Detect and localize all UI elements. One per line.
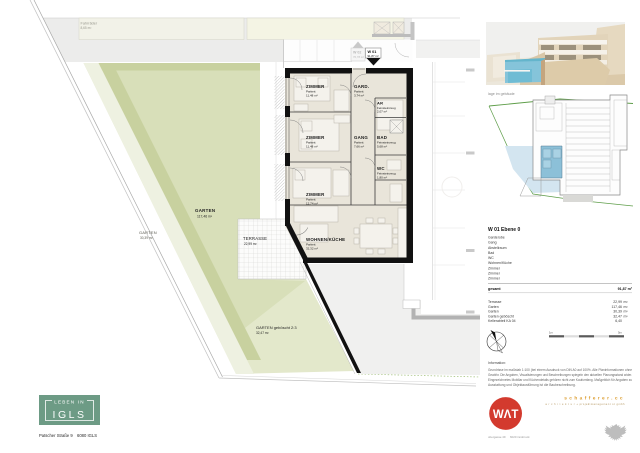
svg-text:Patscher Straße 9: Patscher Straße 9 xyxy=(39,433,73,438)
svg-text:BAD: BAD xyxy=(377,135,387,140)
svg-text:22,99 m²: 22,99 m² xyxy=(244,242,257,246)
svg-text:LEBEN IN: LEBEN IN xyxy=(54,400,85,405)
svg-text:lage im gebäude: lage im gebäude xyxy=(488,92,515,96)
svg-text:Gang: Gang xyxy=(488,241,497,245)
svg-text:Gewähr. Die Angaben, Visualisi: Gewähr. Die Angaben, Visualisierungen un… xyxy=(488,373,632,377)
svg-text:Kellerabteil KA 04: Kellerabteil KA 04 xyxy=(488,319,516,323)
svg-text:ZIMMER: ZIMMER xyxy=(306,84,325,89)
svg-text:Bad: Bad xyxy=(488,251,494,255)
svg-text:Terrasse: Terrasse xyxy=(488,300,501,304)
svg-text:GANG: GANG xyxy=(354,135,368,140)
svg-text:WC: WC xyxy=(377,166,385,171)
svg-text:6,40: 6,40 xyxy=(615,319,622,323)
svg-text:32,47 m²: 32,47 m² xyxy=(256,331,269,335)
svg-text:11,48 m²: 11,48 m² xyxy=(306,144,318,148)
svg-text:6080 IGLS: 6080 IGLS xyxy=(77,433,97,438)
svg-text:obergasse 49: obergasse 49 xyxy=(488,435,506,439)
svg-text:Garderobe: Garderobe xyxy=(488,236,505,240)
svg-text:32,47: 32,47 xyxy=(613,314,622,318)
svg-text:7,66 m²: 7,66 m² xyxy=(354,144,364,148)
svg-text:5m: 5m xyxy=(618,331,623,335)
svg-text:76,78 m²: 76,78 m² xyxy=(353,55,364,59)
svg-text:Zimmer: Zimmer xyxy=(488,277,501,281)
svg-text:8,65 m²: 8,65 m² xyxy=(81,26,92,30)
svg-text:30,39 m²: 30,39 m² xyxy=(140,236,153,240)
svg-text:AR: AR xyxy=(377,101,383,106)
svg-text:11,48 m²: 11,48 m² xyxy=(306,93,318,97)
svg-text:12,74 m²: 12,74 m² xyxy=(306,201,318,205)
svg-text:Garten: Garten xyxy=(488,305,499,309)
svg-text:3,74 m²: 3,74 m² xyxy=(354,93,364,97)
svg-text:TERRASSE: TERRASSE xyxy=(243,236,267,241)
svg-text:117,46: 117,46 xyxy=(612,305,622,309)
svg-text:117,46 m²: 117,46 m² xyxy=(197,215,213,219)
svg-text:GARD.: GARD. xyxy=(354,84,369,89)
svg-text:Ausstattung und Objektausführu: Ausstattung und Objektausführung ist die… xyxy=(488,383,576,387)
svg-text:WC: WC xyxy=(488,256,494,260)
svg-text:6020 innsbruck: 6020 innsbruck xyxy=(510,435,530,439)
svg-text:2,07 m²: 2,07 m² xyxy=(377,109,387,113)
svg-text:WOHNEN/KÜCHE: WOHNEN/KÜCHE xyxy=(306,237,345,242)
svg-text:a r c h i t e k t u r + pr: a r c h i t e k t u r + projektmanagemen… xyxy=(545,402,625,406)
svg-text:GARTEN geböscht 2:3: GARTEN geböscht 2:3 xyxy=(256,325,297,330)
svg-text:W 01 Ebene 0: W 01 Ebene 0 xyxy=(488,227,520,233)
svg-text:Wohnen/Küche: Wohnen/Küche xyxy=(488,261,512,265)
svg-text:30,39: 30,39 xyxy=(613,310,622,314)
svg-text:22,99: 22,99 xyxy=(613,300,622,304)
svg-text:Eingezeichnetes Mobiliar und K: Eingezeichnetes Mobiliar und Küchendetai… xyxy=(488,378,632,382)
svg-text:WΛT: WΛT xyxy=(493,409,519,421)
svg-text:ZIMMER: ZIMMER xyxy=(306,135,325,140)
svg-text:ZIMMER: ZIMMER xyxy=(306,192,325,197)
svg-text:GARTEN: GARTEN xyxy=(195,208,215,213)
svg-text:Garten geböscht: Garten geböscht xyxy=(488,314,514,318)
svg-text:32,32 m²: 32,32 m² xyxy=(306,246,318,250)
svg-text:Information:: Information: xyxy=(488,361,506,365)
svg-text:91,87 m²: 91,87 m² xyxy=(368,54,379,58)
svg-text:1m: 1m xyxy=(549,331,554,335)
svg-text:GARTEN: GARTEN xyxy=(139,230,157,235)
svg-text:Zimmer: Zimmer xyxy=(488,266,501,270)
svg-text:schafferer.cc: schafferer.cc xyxy=(564,396,625,402)
svg-text:W 02: W 02 xyxy=(353,51,361,55)
svg-text:IGLS: IGLS xyxy=(53,409,87,421)
svg-text:Zimmer: Zimmer xyxy=(488,272,501,276)
svg-text:Fahrräder: Fahrräder xyxy=(81,22,98,26)
svg-text:1,80 m²: 1,80 m² xyxy=(377,175,387,179)
svg-text:Abstellraum: Abstellraum xyxy=(488,246,507,250)
svg-text:gesamt: gesamt xyxy=(488,287,501,291)
svg-text:91,87 m²: 91,87 m² xyxy=(618,287,633,291)
svg-text:Grundrisse im maßstab 1:100 (b: Grundrisse im maßstab 1:100 (bei einem A… xyxy=(488,368,632,372)
svg-text:Garten: Garten xyxy=(488,310,499,314)
svg-text:5,68 m²: 5,68 m² xyxy=(377,144,387,148)
